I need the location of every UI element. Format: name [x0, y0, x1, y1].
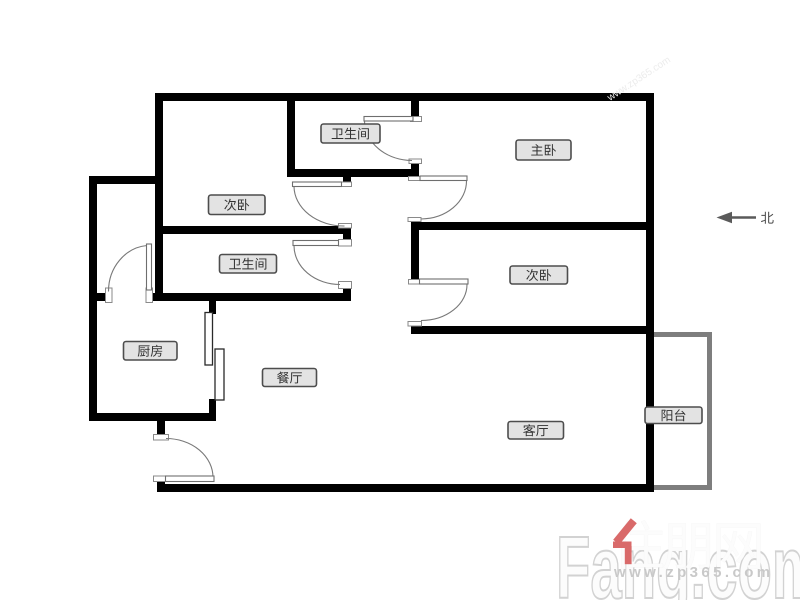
svg-text:www.zp365.com: www.zp365.com	[613, 564, 774, 581]
svg-text:Fang.com: Fang.com	[556, 518, 800, 600]
